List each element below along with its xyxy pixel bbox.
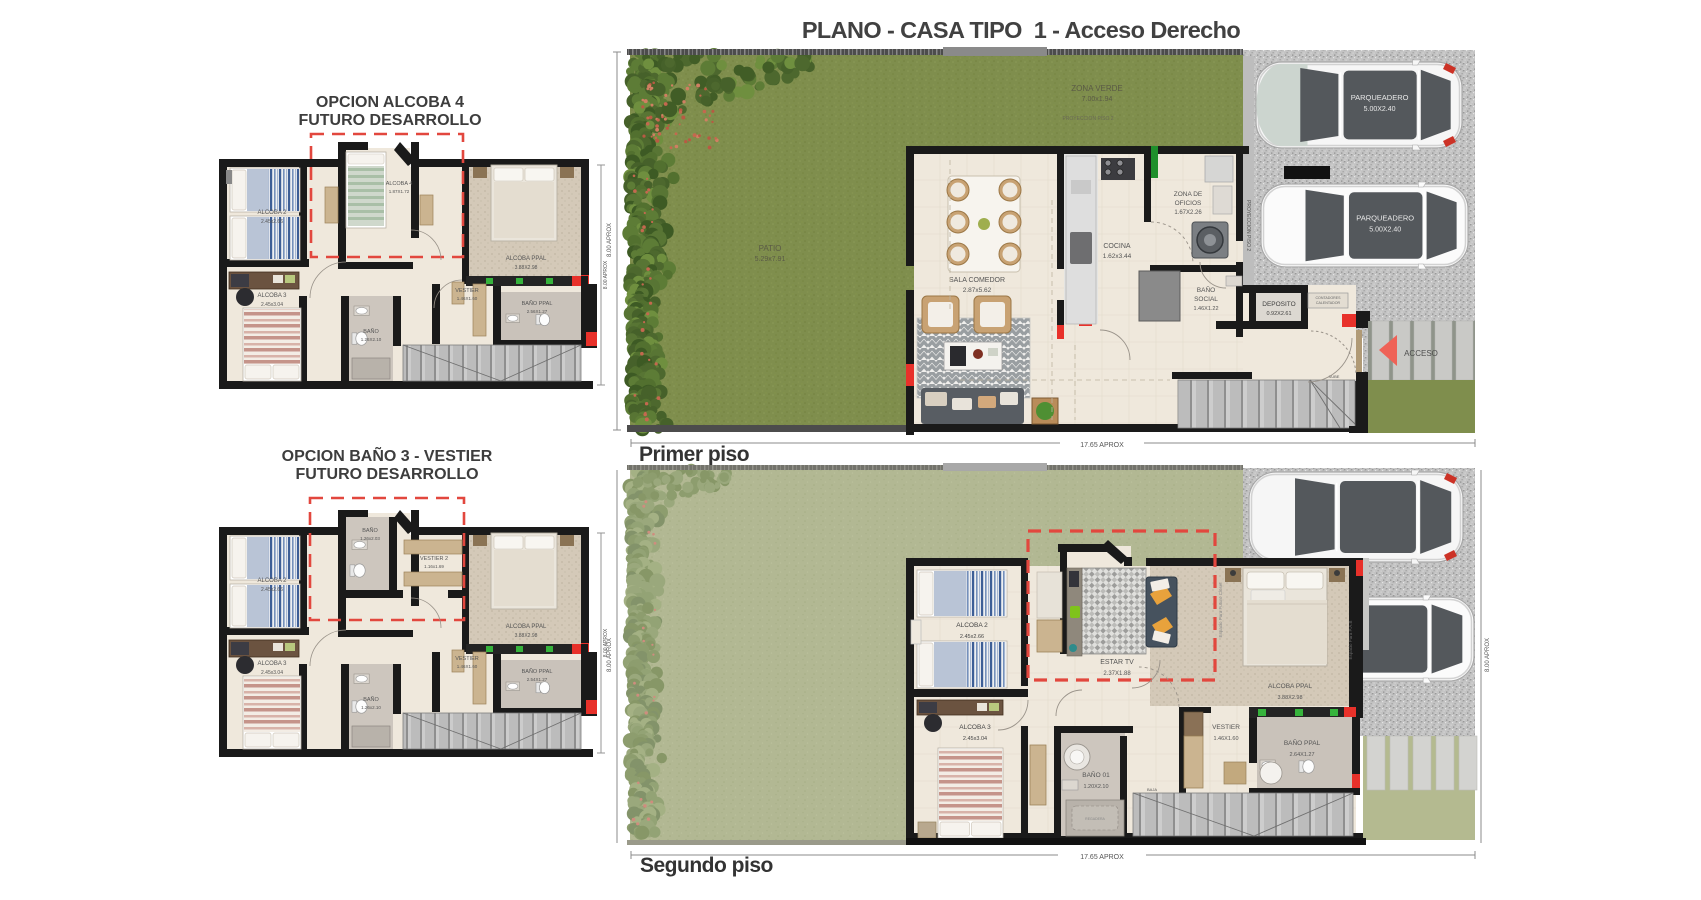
svg-text:BAÑO: BAÑO xyxy=(363,696,379,703)
svg-text:PARQUEADERO: PARQUEADERO xyxy=(1356,214,1414,223)
svg-text:3.88X2.98: 3.88X2.98 xyxy=(1277,695,1302,701)
svg-text:1.62x3.44: 1.62x3.44 xyxy=(1103,253,1132,260)
svg-text:Primer piso: Primer piso xyxy=(639,443,749,466)
svg-text:BAÑO PPAL: BAÑO PPAL xyxy=(522,668,553,675)
svg-text:VESTIER: VESTIER xyxy=(455,288,479,294)
svg-text:2.37X1.88: 2.37X1.88 xyxy=(1103,671,1131,677)
svg-text:OPCION ALCOBA 4: OPCION ALCOBA 4 xyxy=(316,94,464,111)
svg-text:ALCOBA 3: ALCOBA 3 xyxy=(959,724,991,731)
svg-text:ALCOBA PPAL: ALCOBA PPAL xyxy=(506,624,547,630)
svg-text:ALCOBA 3: ALCOBA 3 xyxy=(257,293,287,299)
svg-text:Espacio Para P.A.B: Espacio Para P.A.B xyxy=(1348,621,1353,660)
svg-text:5.00X2.40: 5.00X2.40 xyxy=(1369,227,1401,234)
svg-text:SALA COMEDOR: SALA COMEDOR xyxy=(949,277,1005,284)
svg-text:17.65 APROX: 17.65 APROX xyxy=(1080,442,1124,449)
svg-text:BAÑO 01: BAÑO 01 xyxy=(1082,770,1110,779)
svg-text:2.45x2.66: 2.45x2.66 xyxy=(261,219,283,225)
svg-text:5.29x7.91: 5.29x7.91 xyxy=(755,256,786,263)
svg-text:3.88X2.98: 3.88X2.98 xyxy=(515,265,538,271)
svg-text:1.26x2.03: 1.26x2.03 xyxy=(360,536,380,541)
svg-text:ALCOBA 2: ALCOBA 2 xyxy=(257,210,287,216)
svg-text:3.88X2.98: 3.88X2.98 xyxy=(515,633,538,639)
svg-text:1.20X2.10: 1.20X2.10 xyxy=(1083,784,1108,790)
svg-text:2.45x2.66: 2.45x2.66 xyxy=(261,587,283,593)
svg-text:1.87X1.72: 1.87X1.72 xyxy=(389,189,410,194)
svg-text:PROYECCION PISO 2: PROYECCION PISO 2 xyxy=(1062,116,1113,122)
svg-text:REGADERA: REGADERA xyxy=(1085,817,1105,821)
svg-text:1.26X2.10: 1.26X2.10 xyxy=(361,337,382,342)
svg-text:2.54X1.27: 2.54X1.27 xyxy=(527,677,548,682)
svg-text:BAJA: BAJA xyxy=(1147,787,1157,792)
svg-text:BAÑO PPAL: BAÑO PPAL xyxy=(1284,738,1321,747)
svg-text:ALCOBA 2: ALCOBA 2 xyxy=(956,622,988,629)
svg-text:BAÑO: BAÑO xyxy=(363,328,379,335)
svg-text:1.16x1.69: 1.16x1.69 xyxy=(424,564,444,569)
svg-text:PATIO: PATIO xyxy=(759,244,782,253)
svg-text:2.45x3.04: 2.45x3.04 xyxy=(261,670,283,676)
svg-text:8.00 APROX: 8.00 APROX xyxy=(603,260,609,289)
svg-text:ALCOBA PPAL: ALCOBA PPAL xyxy=(506,256,547,262)
svg-text:PLANO - CASA TIPO 1 - Acceso: PLANO - CASA TIPO 1 - Acceso Derecho xyxy=(802,17,1241,43)
svg-text:FUTURO DESARROLLO: FUTURO DESARROLLO xyxy=(298,112,481,129)
svg-text:BAÑO: BAÑO xyxy=(1197,285,1215,294)
svg-text:FUTURO DESARROLLO: FUTURO DESARROLLO xyxy=(295,466,478,483)
svg-text:8.00 APROX: 8.00 APROX xyxy=(607,223,613,257)
svg-text:2.45x3.04: 2.45x3.04 xyxy=(963,736,987,742)
svg-text:8.00 APROX: 8.00 APROX xyxy=(1485,638,1491,672)
svg-text:1.46X1.60: 1.46X1.60 xyxy=(1213,736,1238,742)
svg-text:CONTADORES: CONTADORES xyxy=(1315,296,1341,300)
svg-text:ZONA DE: ZONA DE xyxy=(1174,191,1203,198)
svg-text:ALCOBA PPAL: ALCOBA PPAL xyxy=(1268,683,1312,690)
svg-text:8.00 APROX: 8.00 APROX xyxy=(603,628,609,657)
svg-text:17.65 APROX: 17.65 APROX xyxy=(1080,854,1124,861)
svg-text:VESTIER: VESTIER xyxy=(455,656,479,662)
svg-text:VESTIER 2: VESTIER 2 xyxy=(420,556,448,562)
svg-text:OFICIOS: OFICIOS xyxy=(1175,200,1202,207)
svg-text:2.45x2.66: 2.45x2.66 xyxy=(960,634,984,640)
svg-text:1.46X1.60: 1.46X1.60 xyxy=(457,664,478,669)
svg-text:PROYECCION PISO 2: PROYECCION PISO 2 xyxy=(1245,200,1251,251)
svg-text:ESTAR TV: ESTAR TV xyxy=(1100,659,1134,666)
svg-text:1.67X2.26: 1.67X2.26 xyxy=(1174,210,1202,216)
svg-text:1.46X1.22: 1.46X1.22 xyxy=(1193,306,1218,312)
svg-text:5.00X2.40: 5.00X2.40 xyxy=(1364,106,1396,113)
svg-text:2.45x3.04: 2.45x3.04 xyxy=(261,302,283,308)
svg-text:ZONA VERDE: ZONA VERDE xyxy=(1071,84,1123,93)
svg-text:1.26x2.10: 1.26x2.10 xyxy=(361,705,381,710)
svg-text:7.00x1.94: 7.00x1.94 xyxy=(1082,96,1113,103)
svg-text:ACCESO: ACCESO xyxy=(1404,349,1438,358)
svg-text:ALCOBA 4: ALCOBA 4 xyxy=(386,181,413,187)
svg-text:OPCION BAÑO 3 - VESTIER: OPCION BAÑO 3 - VESTIER xyxy=(282,445,493,465)
svg-text:2.87x5.62: 2.87x5.62 xyxy=(963,287,992,294)
svg-text:BAÑO: BAÑO xyxy=(362,527,378,534)
svg-text:VESTIER: VESTIER xyxy=(1212,724,1240,731)
svg-text:CALENTADOR: CALENTADOR xyxy=(1316,301,1341,305)
svg-text:2.56X1.27: 2.56X1.27 xyxy=(527,309,548,314)
svg-text:PARQUEADERO: PARQUEADERO xyxy=(1351,93,1409,102)
svg-text:1.46X1.60: 1.46X1.60 xyxy=(457,296,478,301)
svg-text:BAÑO PPAL: BAÑO PPAL xyxy=(522,300,553,307)
svg-text:0.92X2.61: 0.92X2.61 xyxy=(1266,311,1291,317)
svg-text:COCINA: COCINA xyxy=(1103,243,1131,250)
svg-text:ALCOBA 3: ALCOBA 3 xyxy=(257,661,287,667)
svg-text:Segundo piso: Segundo piso xyxy=(640,854,773,877)
svg-text:Espacio Para Futuro Closet: Espacio Para Futuro Closet xyxy=(1218,582,1223,638)
svg-text:ALCOBA 2: ALCOBA 2 xyxy=(257,578,287,584)
svg-text:SOCIAL: SOCIAL xyxy=(1194,296,1218,303)
svg-text:DEPOSITO: DEPOSITO xyxy=(1262,301,1295,308)
svg-text:2.64X1.27: 2.64X1.27 xyxy=(1289,752,1314,758)
